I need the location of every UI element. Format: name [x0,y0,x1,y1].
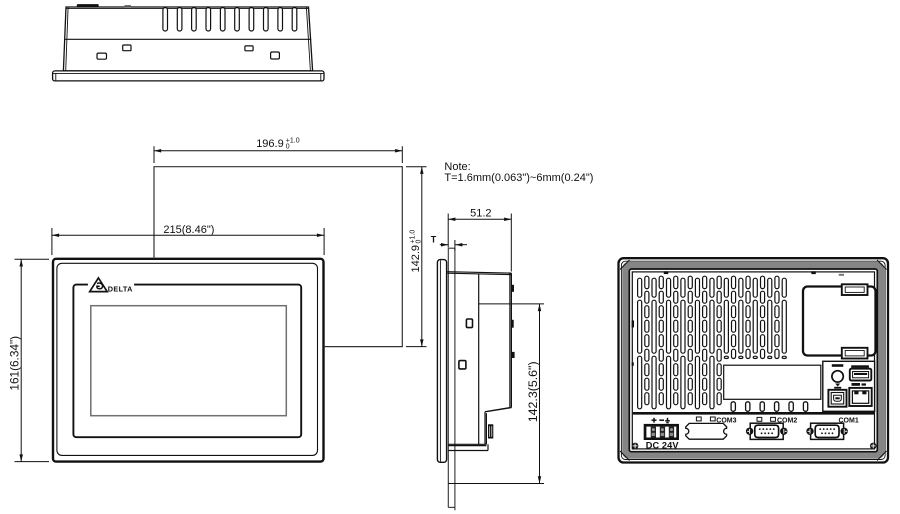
svg-text:215(8.46"): 215(8.46") [163,224,214,236]
svg-text:51.2: 51.2 [470,208,491,220]
svg-text:DC 24V: DC 24V [646,440,680,450]
svg-text:196.9: 196.9 [256,138,284,150]
svg-text:142.3(5.6"): 142.3(5.6") [526,361,540,422]
svg-text:Note:: Note: [444,161,470,173]
svg-text:COM3: COM3 [716,417,736,424]
svg-text:COM1: COM1 [839,417,859,424]
svg-text:COM2: COM2 [777,417,797,424]
svg-text:161(6.34"): 161(6.34") [8,336,22,391]
svg-text:0: 0 [416,240,423,244]
svg-text:T=1.6mm(0.063")~6mm(0.24"): T=1.6mm(0.063")~6mm(0.24") [444,172,593,184]
svg-text:T: T [431,235,437,245]
svg-text:DELTA: DELTA [108,284,133,293]
svg-text:0: 0 [286,144,290,151]
svg-text:142.9: 142.9 [410,245,422,273]
